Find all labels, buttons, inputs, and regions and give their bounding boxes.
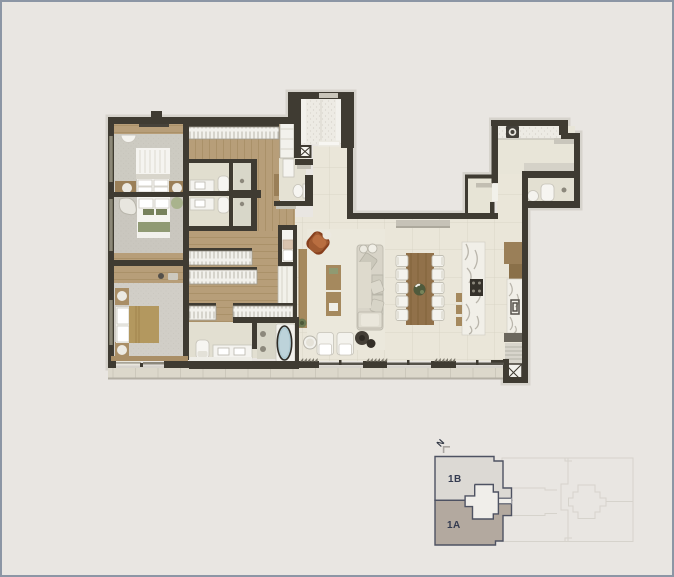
svg-text:1B: 1B (448, 474, 462, 485)
svg-text:1A: 1A (447, 520, 461, 531)
